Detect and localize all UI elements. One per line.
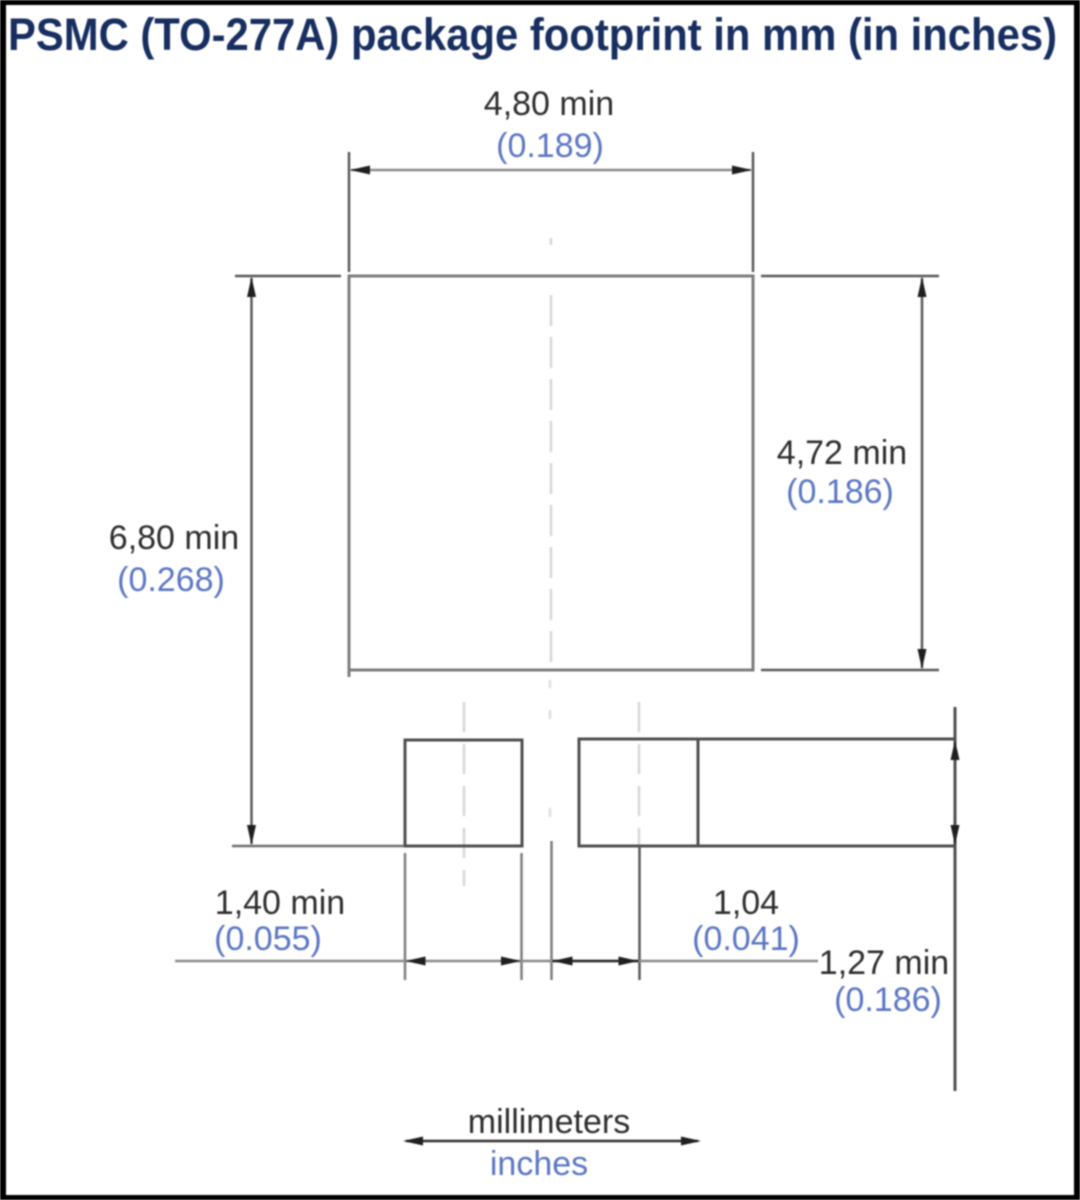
svg-text:(0.186): (0.186) [834,981,942,1019]
svg-text:1,27 min: 1,27 min [819,944,949,982]
svg-text:millimeters: millimeters [468,1103,630,1141]
svg-text:4,80 min: 4,80 min [484,85,614,123]
svg-text:(0.189): (0.189) [496,127,604,165]
svg-text:4,72 min: 4,72 min [777,434,907,472]
svg-text:PSMC (TO-277A) package footpri: PSMC (TO-277A) package footprint in mm (… [8,9,1057,60]
svg-text:6,80 min: 6,80 min [109,519,239,557]
svg-text:(0.055): (0.055) [214,920,322,958]
svg-text:inches: inches [490,1145,588,1183]
svg-text:(0.268): (0.268) [117,561,225,599]
svg-text:1,04: 1,04 [713,884,779,922]
svg-text:(0.186): (0.186) [786,473,894,511]
svg-text:(0.041): (0.041) [692,920,800,958]
svg-text:1,40 min: 1,40 min [215,884,345,922]
